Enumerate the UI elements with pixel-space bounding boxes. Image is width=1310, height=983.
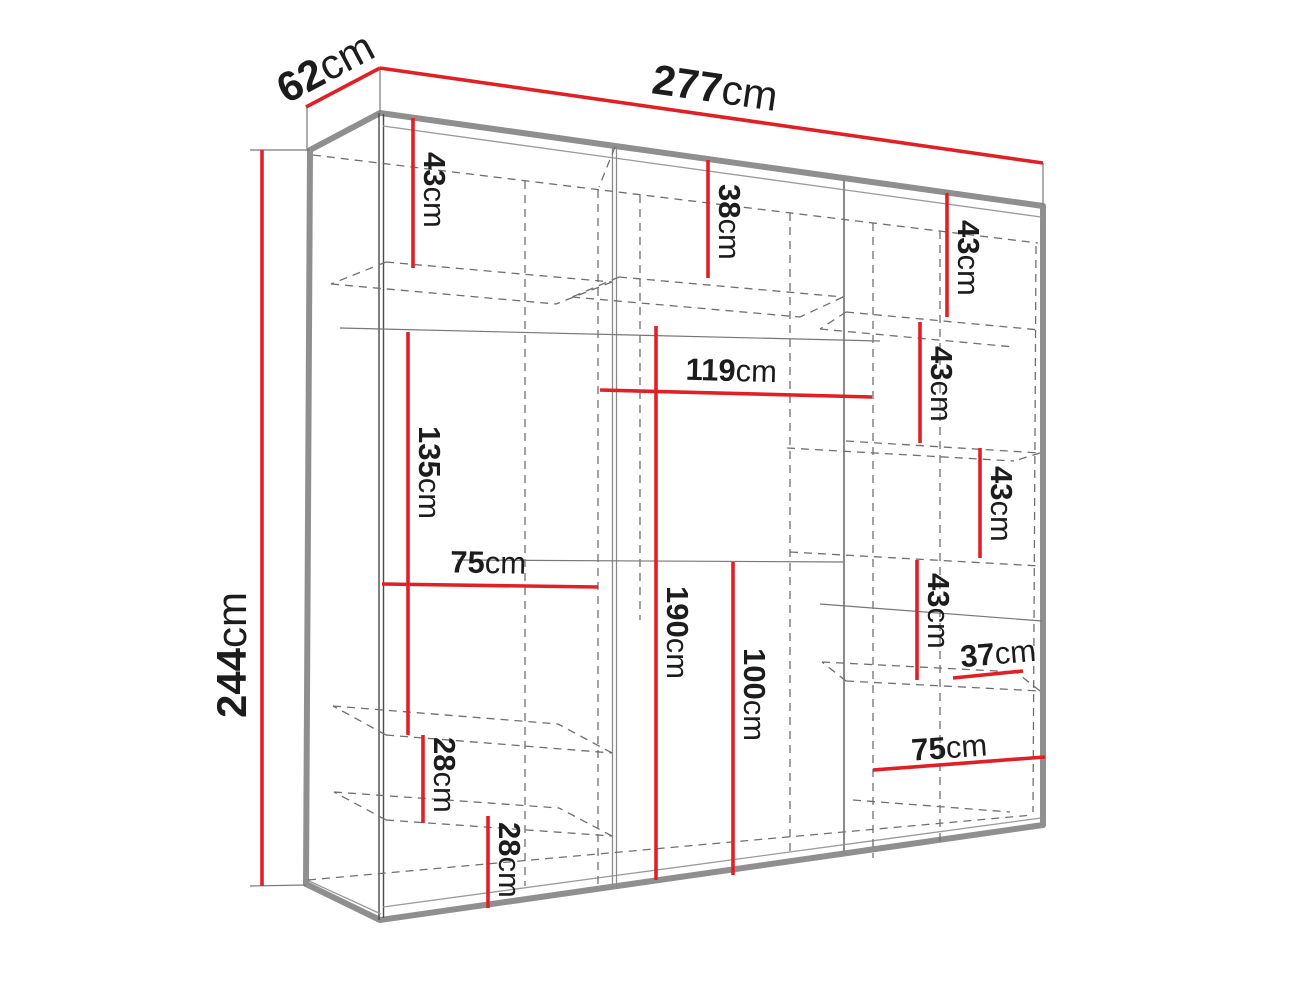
dimension-label-mid-width: 119cm bbox=[685, 352, 777, 389]
dimension-label-right-shelf-4: 43cm bbox=[921, 573, 956, 649]
height-ext-bottom bbox=[250, 885, 306, 886]
dimension-label-left-top-shelf: 43cm bbox=[417, 152, 452, 228]
dimension-label-right-shelf-3: 43cm bbox=[984, 466, 1019, 542]
dimension-label-right-width: 75cm bbox=[910, 727, 988, 767]
dimension-label-left-drawer-2: 28cm bbox=[492, 822, 527, 898]
dimension-label-left-drawer-1: 28cm bbox=[427, 737, 462, 813]
dimension-label-mid-lower: 100cm bbox=[737, 648, 772, 741]
dimension-label-left-hanging: 135cm bbox=[412, 426, 447, 519]
dimension-label-right-shelf-2: 43cm bbox=[924, 346, 959, 422]
diagram-canvas: 62cm277cm244cm43cm135cm28cm28cm75cm38cm1… bbox=[0, 0, 1310, 983]
wardrobe-dimension-diagram: 62cm277cm244cm43cm135cm28cm28cm75cm38cm1… bbox=[0, 0, 1310, 983]
dimension-label-mid-hanging: 190cm bbox=[660, 586, 695, 679]
dimension-label-height: 244cm bbox=[208, 592, 255, 718]
dimension-label-right-niche-width: 37cm bbox=[959, 633, 1038, 674]
dimension-label-left-width: 75cm bbox=[450, 544, 526, 580]
dimension-label-mid-top-shelf: 38cm bbox=[712, 184, 747, 260]
dimension-label-right-shelf-1: 43cm bbox=[951, 220, 986, 296]
